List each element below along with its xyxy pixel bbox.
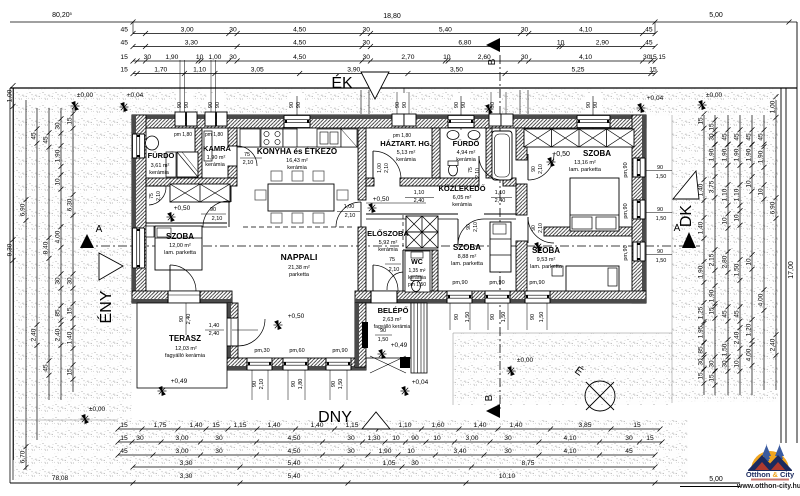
svg-text:10: 10 (746, 180, 753, 188)
svg-text:pm,90: pm,90 (452, 280, 467, 286)
svg-text:4,00: 4,00 (758, 293, 765, 306)
svg-text:30: 30 (504, 448, 512, 455)
svg-text:DNY: DNY (318, 409, 352, 426)
svg-text:DK: DK (678, 205, 695, 228)
svg-text:30: 30 (521, 54, 529, 61)
svg-text:45: 45 (31, 132, 38, 140)
svg-text:10: 10 (443, 54, 451, 61)
svg-text:90: 90 (466, 224, 472, 230)
svg-text:1,90: 1,90 (709, 289, 716, 302)
svg-text:2,10: 2,10 (345, 213, 356, 219)
svg-text:1,75: 1,75 (153, 422, 166, 429)
svg-text:1,90: 1,90 (746, 148, 753, 161)
svg-text:45: 45 (43, 364, 50, 372)
svg-text:FÜRDŐ: FÜRDŐ (453, 139, 480, 148)
svg-text:90: 90 (331, 381, 337, 387)
svg-text:15: 15 (67, 307, 74, 315)
svg-text:3,30: 3,30 (179, 460, 192, 467)
svg-text:9,30: 9,30 (7, 243, 14, 256)
svg-text:pm,90: pm,90 (529, 280, 544, 286)
svg-text:10: 10 (746, 258, 753, 266)
svg-text:1,40: 1,40 (67, 331, 74, 344)
svg-text:10: 10 (722, 217, 729, 225)
svg-text:2,70: 2,70 (401, 54, 414, 61)
svg-text:BELÉPŐ: BELÉPŐ (378, 306, 409, 315)
svg-text:10: 10 (433, 435, 441, 442)
svg-text:SZOBA: SZOBA (453, 243, 481, 252)
svg-text:2,40: 2,40 (55, 328, 62, 341)
svg-text:5,00: 5,00 (709, 12, 723, 19)
svg-text:pm,90: pm,90 (623, 245, 629, 260)
svg-text:10: 10 (758, 188, 765, 196)
svg-text:90: 90 (291, 381, 297, 387)
svg-text:FÜRDŐ: FÜRDŐ (148, 151, 175, 160)
svg-text:90: 90 (215, 102, 221, 108)
svg-text:45: 45 (734, 310, 741, 318)
svg-text:1,50: 1,50 (501, 312, 507, 323)
svg-text:45: 45 (722, 133, 729, 141)
svg-text:1,40: 1,40 (267, 422, 280, 429)
svg-text:15: 15 (120, 422, 128, 429)
svg-text:45: 45 (746, 133, 753, 141)
svg-text:1,90: 1,90 (165, 54, 178, 61)
svg-text:www.otthon-city.hu: www.otthon-city.hu (736, 483, 800, 490)
svg-text:3,50: 3,50 (450, 67, 463, 74)
svg-text:45: 45 (43, 136, 50, 144)
svg-text:45: 45 (722, 310, 729, 318)
svg-text:KONYHA és ÉTKEZŐ: KONYHA és ÉTKEZŐ (257, 147, 337, 156)
svg-text:30: 30 (215, 435, 223, 442)
svg-text:+0,50: +0,50 (288, 313, 305, 320)
svg-text:±0,00: ±0,00 (89, 406, 106, 413)
svg-text:90: 90 (531, 166, 537, 172)
svg-text:30: 30 (229, 27, 237, 34)
svg-text:5,40: 5,40 (439, 27, 452, 34)
svg-text:30: 30 (347, 435, 355, 442)
svg-text:15: 15 (649, 67, 657, 74)
svg-text:kerámia: kerámia (378, 247, 399, 253)
svg-text:ÉNY: ÉNY (96, 290, 115, 323)
svg-text:kerámia: kerámia (408, 275, 426, 281)
svg-text:90: 90 (531, 225, 537, 231)
svg-text:3,00: 3,00 (175, 448, 188, 455)
svg-text:SZOBA: SZOBA (583, 149, 611, 158)
svg-text:1,10: 1,10 (734, 188, 741, 201)
svg-text:5,00: 5,00 (709, 476, 723, 483)
svg-text:1,10: 1,10 (495, 190, 506, 196)
svg-text:15: 15 (698, 117, 705, 125)
svg-text:2,10: 2,10 (475, 168, 481, 178)
svg-text:21,38 m²: 21,38 m² (288, 265, 310, 271)
svg-text:75: 75 (244, 152, 250, 158)
svg-text:12,03 m²: 12,03 m² (175, 346, 197, 352)
svg-text:90: 90 (657, 207, 663, 213)
svg-text:90: 90 (210, 207, 216, 213)
svg-text:pm,90: pm,90 (489, 280, 504, 286)
svg-text:30: 30 (504, 435, 512, 442)
svg-text:90: 90 (289, 102, 295, 108)
svg-text:5,40: 5,40 (287, 460, 300, 467)
svg-text:45: 45 (120, 448, 128, 455)
svg-text:30: 30 (521, 27, 529, 34)
svg-text:1,40: 1,40 (473, 422, 486, 429)
svg-text:1,40: 1,40 (189, 422, 202, 429)
svg-text:4,50: 4,50 (287, 448, 300, 455)
svg-text:6,90: 6,90 (20, 203, 27, 216)
svg-text:85: 85 (698, 346, 705, 354)
svg-text:30: 30 (229, 54, 237, 61)
svg-text:1,90: 1,90 (758, 150, 765, 163)
svg-text:1,50: 1,50 (539, 312, 545, 323)
svg-text:1,50: 1,50 (338, 379, 344, 390)
svg-text:90: 90 (179, 316, 185, 322)
svg-text:WC: WC (411, 259, 423, 266)
svg-text:2,40: 2,40 (186, 314, 192, 325)
svg-text:85: 85 (55, 309, 62, 317)
svg-text:1,20: 1,20 (746, 323, 753, 336)
svg-text:6,90: 6,90 (770, 201, 777, 214)
svg-text:lam. parketta: lam. parketta (164, 250, 197, 256)
svg-text:1,90: 1,90 (722, 148, 729, 161)
svg-text:1,00: 1,00 (7, 89, 14, 102)
svg-text:ÉK: ÉK (331, 73, 353, 92)
svg-text:lam. parketta: lam. parketta (530, 264, 563, 270)
svg-text:15: 15 (633, 422, 641, 429)
svg-text:10: 10 (734, 214, 741, 222)
svg-text:1,90: 1,90 (698, 265, 705, 278)
svg-text:6,80: 6,80 (458, 40, 471, 47)
svg-text:B: B (487, 58, 498, 65)
svg-text:12,00 m²: 12,00 m² (169, 243, 191, 249)
svg-text:2,10: 2,10 (259, 379, 265, 390)
svg-text:1,90: 1,90 (709, 148, 716, 161)
svg-text:KÖZLEKEDŐ: KÖZLEKEDŐ (438, 184, 485, 193)
svg-text:1,50: 1,50 (656, 216, 667, 222)
svg-text:15: 15 (120, 67, 128, 74)
svg-text:1,90: 1,90 (55, 149, 62, 162)
svg-text:3,61 m²: 3,61 m² (151, 163, 170, 169)
svg-text:SZOBA: SZOBA (166, 232, 194, 241)
svg-text:1,15: 1,15 (233, 422, 246, 429)
svg-text:90: 90 (454, 314, 460, 320)
svg-text:2,10: 2,10 (243, 160, 254, 166)
svg-text:45: 45 (645, 27, 653, 34)
svg-text:+0,04: +0,04 (647, 95, 664, 102)
svg-text:90: 90 (380, 328, 386, 334)
svg-text:30: 30 (144, 54, 152, 61)
svg-text:45: 45 (625, 448, 633, 455)
svg-text:1,50: 1,50 (656, 174, 667, 180)
svg-text:10: 10 (407, 448, 415, 455)
svg-text:4,10: 4,10 (563, 435, 576, 442)
svg-text:3,85: 3,85 (578, 422, 591, 429)
svg-text:2,10: 2,10 (538, 223, 544, 233)
svg-text:1,40: 1,40 (509, 422, 522, 429)
svg-text:30: 30 (363, 27, 371, 34)
svg-text:15: 15 (649, 54, 657, 61)
svg-text:6,30: 6,30 (67, 198, 74, 211)
svg-text:1,50: 1,50 (378, 337, 389, 343)
svg-text:kerámia: kerámia (396, 157, 417, 163)
svg-text:3,75: 3,75 (709, 180, 716, 193)
svg-text:6,70: 6,70 (20, 450, 27, 463)
svg-text:30: 30 (67, 277, 74, 285)
svg-text:90: 90 (657, 249, 663, 255)
svg-text:30: 30 (55, 122, 62, 130)
svg-text:15: 15 (646, 435, 654, 442)
svg-text:6,05 m²: 6,05 m² (453, 195, 472, 201)
svg-text:4,50: 4,50 (293, 54, 306, 61)
svg-text:80,205: 80,205 (52, 11, 73, 19)
svg-text:1,35 m²: 1,35 m² (409, 268, 426, 274)
svg-text:2,40: 2,40 (414, 198, 425, 204)
svg-text:3,05: 3,05 (251, 67, 264, 74)
svg-text:4,00: 4,00 (746, 348, 753, 361)
svg-text:2,63 m²: 2,63 m² (383, 317, 402, 323)
svg-text:2,10: 2,10 (389, 267, 400, 273)
svg-text:90: 90 (593, 102, 599, 108)
svg-text:pm,90: pm,90 (332, 348, 347, 354)
svg-text:30: 30 (55, 277, 62, 285)
svg-text:30: 30 (709, 360, 716, 368)
svg-text:2,40: 2,40 (31, 328, 38, 341)
svg-text:+0,49: +0,49 (391, 342, 408, 349)
svg-text:16,43 m²: 16,43 m² (286, 158, 308, 164)
svg-text:2,90: 2,90 (596, 40, 609, 47)
svg-text:30: 30 (722, 360, 729, 368)
svg-text:45: 45 (121, 40, 129, 47)
svg-text:15: 15 (709, 123, 716, 131)
svg-text:+0,50: +0,50 (552, 151, 570, 158)
svg-text:1,10: 1,10 (398, 422, 411, 429)
svg-text:lam. parketta: lam. parketta (569, 167, 602, 173)
svg-text:10,10: 10,10 (499, 473, 516, 480)
svg-text:75: 75 (389, 257, 395, 263)
svg-text:2,10: 2,10 (538, 164, 544, 174)
svg-text:1,50: 1,50 (656, 258, 667, 264)
svg-text:KAMRA: KAMRA (203, 144, 231, 153)
svg-text:90: 90 (657, 165, 663, 171)
svg-text:45: 45 (734, 133, 741, 141)
svg-text:2,10: 2,10 (212, 216, 223, 222)
svg-text:kerámia: kerámia (456, 157, 477, 163)
svg-text:kerámia: kerámia (452, 202, 473, 208)
svg-text:45: 45 (758, 133, 765, 141)
svg-text:4,10: 4,10 (579, 27, 592, 34)
svg-text:1,10: 1,10 (193, 67, 206, 74)
svg-text:1,25: 1,25 (698, 306, 705, 319)
svg-text:kerámia: kerámia (287, 165, 308, 171)
svg-text:5,13 m²: 5,13 m² (397, 150, 416, 156)
svg-text:90: 90 (454, 102, 460, 108)
svg-text:5,92 m²: 5,92 m² (379, 240, 398, 246)
svg-text:30: 30 (698, 358, 705, 366)
svg-text:2,10: 2,10 (473, 222, 479, 232)
svg-text:90: 90 (395, 102, 401, 108)
svg-text:1,90: 1,90 (734, 148, 741, 161)
svg-text:4,10: 4,10 (579, 54, 592, 61)
svg-text:1,80: 1,80 (298, 379, 304, 390)
svg-text:lam. parketta: lam. parketta (451, 261, 484, 267)
svg-text:2,40: 2,40 (734, 331, 741, 344)
svg-text:4,94 m²: 4,94 m² (457, 150, 476, 156)
svg-text:30: 30 (411, 460, 419, 467)
svg-text:15: 15 (212, 422, 220, 429)
svg-text:kerámia: kerámia (205, 162, 226, 168)
svg-text:2,40: 2,40 (770, 338, 777, 351)
svg-text:2,10: 2,10 (156, 191, 162, 201)
svg-text:1,60: 1,60 (431, 422, 444, 429)
svg-text:17,00: 17,00 (788, 261, 795, 279)
svg-text:15: 15 (658, 54, 666, 61)
svg-text:2,15: 2,15 (709, 253, 716, 266)
svg-text:9,53 m²: 9,53 m² (537, 257, 556, 263)
svg-text:15: 15 (67, 117, 74, 125)
svg-text:45: 45 (645, 40, 653, 47)
svg-text:3,90: 3,90 (347, 67, 360, 74)
svg-text:pm,90: pm,90 (623, 162, 629, 177)
svg-text:1,95: 1,95 (698, 325, 705, 338)
svg-text:1,05: 1,05 (382, 460, 395, 467)
svg-text:8,75: 8,75 (521, 460, 534, 467)
svg-text:4,50: 4,50 (293, 40, 306, 47)
svg-text:4,00: 4,00 (55, 230, 62, 243)
svg-text:3,00: 3,00 (175, 435, 188, 442)
svg-text:75: 75 (149, 193, 155, 199)
svg-text:SZOBA: SZOBA (532, 246, 560, 255)
svg-text:1,00: 1,00 (208, 54, 221, 61)
svg-text:8,40: 8,40 (43, 241, 50, 254)
svg-text:78,08: 78,08 (52, 475, 69, 482)
svg-text:30: 30 (625, 435, 633, 442)
svg-text:8,88 m²: 8,88 m² (458, 254, 477, 260)
svg-text:+0,04: +0,04 (412, 379, 429, 386)
svg-text:±0,00: ±0,00 (517, 357, 534, 364)
svg-text:90: 90 (184, 102, 190, 108)
svg-text:30: 30 (709, 133, 716, 141)
svg-text:5,25: 5,25 (571, 67, 584, 74)
svg-text:1,50: 1,50 (734, 263, 741, 276)
svg-text:NAPPALI: NAPPALI (281, 252, 318, 262)
svg-text:90: 90 (586, 102, 592, 108)
svg-text:1,30: 1,30 (367, 435, 380, 442)
svg-text:10: 10 (392, 435, 400, 442)
svg-text:1,10: 1,10 (414, 190, 425, 196)
svg-text:+0,50: +0,50 (373, 196, 390, 203)
svg-text:4,50: 4,50 (293, 27, 306, 34)
svg-text:90: 90 (490, 314, 496, 320)
svg-text:TERASZ: TERASZ (169, 334, 201, 343)
svg-text:10: 10 (734, 360, 741, 368)
svg-text:15: 15 (698, 372, 705, 380)
svg-text:+0,49: +0,49 (171, 378, 188, 385)
svg-text:fagyálló kerámia: fagyálló kerámia (165, 353, 206, 359)
svg-text:pm,60: pm,60 (289, 348, 304, 354)
svg-text:90: 90 (411, 435, 419, 442)
svg-text:pm 1,50: pm 1,50 (408, 282, 426, 288)
svg-text:+0,50: +0,50 (174, 205, 191, 212)
svg-text:30: 30 (363, 40, 371, 47)
svg-text:pm 1,80: pm 1,80 (174, 132, 192, 138)
svg-text:2,10: 2,10 (384, 163, 390, 173)
svg-text:1,90: 1,90 (378, 448, 391, 455)
svg-text:±0,00: ±0,00 (706, 92, 723, 99)
svg-text:pm 1,80: pm 1,80 (205, 132, 223, 138)
svg-text:30: 30 (215, 448, 223, 455)
svg-text:B: B (484, 394, 495, 401)
svg-text:10: 10 (557, 40, 565, 47)
svg-text:15: 15 (120, 435, 128, 442)
svg-text:parketta: parketta (289, 272, 310, 278)
svg-text:2,40: 2,40 (495, 198, 506, 204)
svg-text:5,40: 5,40 (288, 473, 301, 480)
svg-text:4,50: 4,50 (287, 435, 300, 442)
svg-text:15: 15 (120, 54, 128, 61)
svg-text:30: 30 (136, 435, 144, 442)
svg-text:HÁZTART. HG.: HÁZTART. HG. (380, 139, 432, 148)
svg-text:1,40: 1,40 (698, 221, 705, 234)
svg-text:90: 90 (402, 102, 408, 108)
svg-text:10: 10 (196, 54, 204, 61)
svg-text:90: 90 (461, 102, 467, 108)
svg-text:3,00: 3,00 (465, 435, 478, 442)
svg-text:90: 90 (530, 314, 536, 320)
svg-text:1,70: 1,70 (154, 67, 167, 74)
svg-text:10: 10 (55, 178, 62, 186)
svg-text:1,00: 1,00 (770, 100, 777, 113)
svg-text:1,00: 1,00 (344, 204, 355, 210)
svg-text:18,80: 18,80 (383, 13, 401, 20)
svg-text:3,30: 3,30 (185, 40, 198, 47)
svg-text:30: 30 (347, 448, 355, 455)
svg-text:±0,00: ±0,00 (77, 92, 94, 99)
svg-text:15: 15 (709, 374, 716, 382)
svg-text:1,50: 1,50 (722, 343, 729, 356)
svg-text:90: 90 (252, 381, 258, 387)
svg-text:2,80: 2,80 (722, 255, 729, 268)
svg-text:13,16 m²: 13,16 m² (574, 160, 596, 166)
svg-text:pm,90: pm,90 (623, 203, 629, 218)
svg-text:15: 15 (67, 368, 74, 376)
svg-text:3,40: 3,40 (453, 448, 466, 455)
svg-text:1,40: 1,40 (209, 323, 220, 329)
svg-text:1,00: 1,00 (377, 163, 383, 173)
svg-text:30: 30 (363, 54, 371, 61)
svg-text:75: 75 (468, 167, 474, 173)
svg-text:Otthon & City: Otthon & City (746, 470, 795, 479)
svg-text:15: 15 (709, 307, 716, 315)
svg-text:2,40: 2,40 (209, 331, 220, 337)
svg-text:1,10: 1,10 (722, 188, 729, 201)
svg-text:3,00: 3,00 (181, 27, 194, 34)
svg-text:4,10: 4,10 (563, 448, 576, 455)
svg-text:pm,30: pm,30 (254, 348, 269, 354)
svg-text:45: 45 (121, 27, 129, 34)
svg-text:+0,04: +0,04 (127, 92, 144, 99)
svg-text:1,90 m²: 1,90 m² (207, 155, 226, 161)
svg-text:A: A (96, 224, 103, 235)
svg-text:kerámia: kerámia (149, 170, 170, 176)
svg-text:3,30: 3,30 (180, 473, 193, 480)
